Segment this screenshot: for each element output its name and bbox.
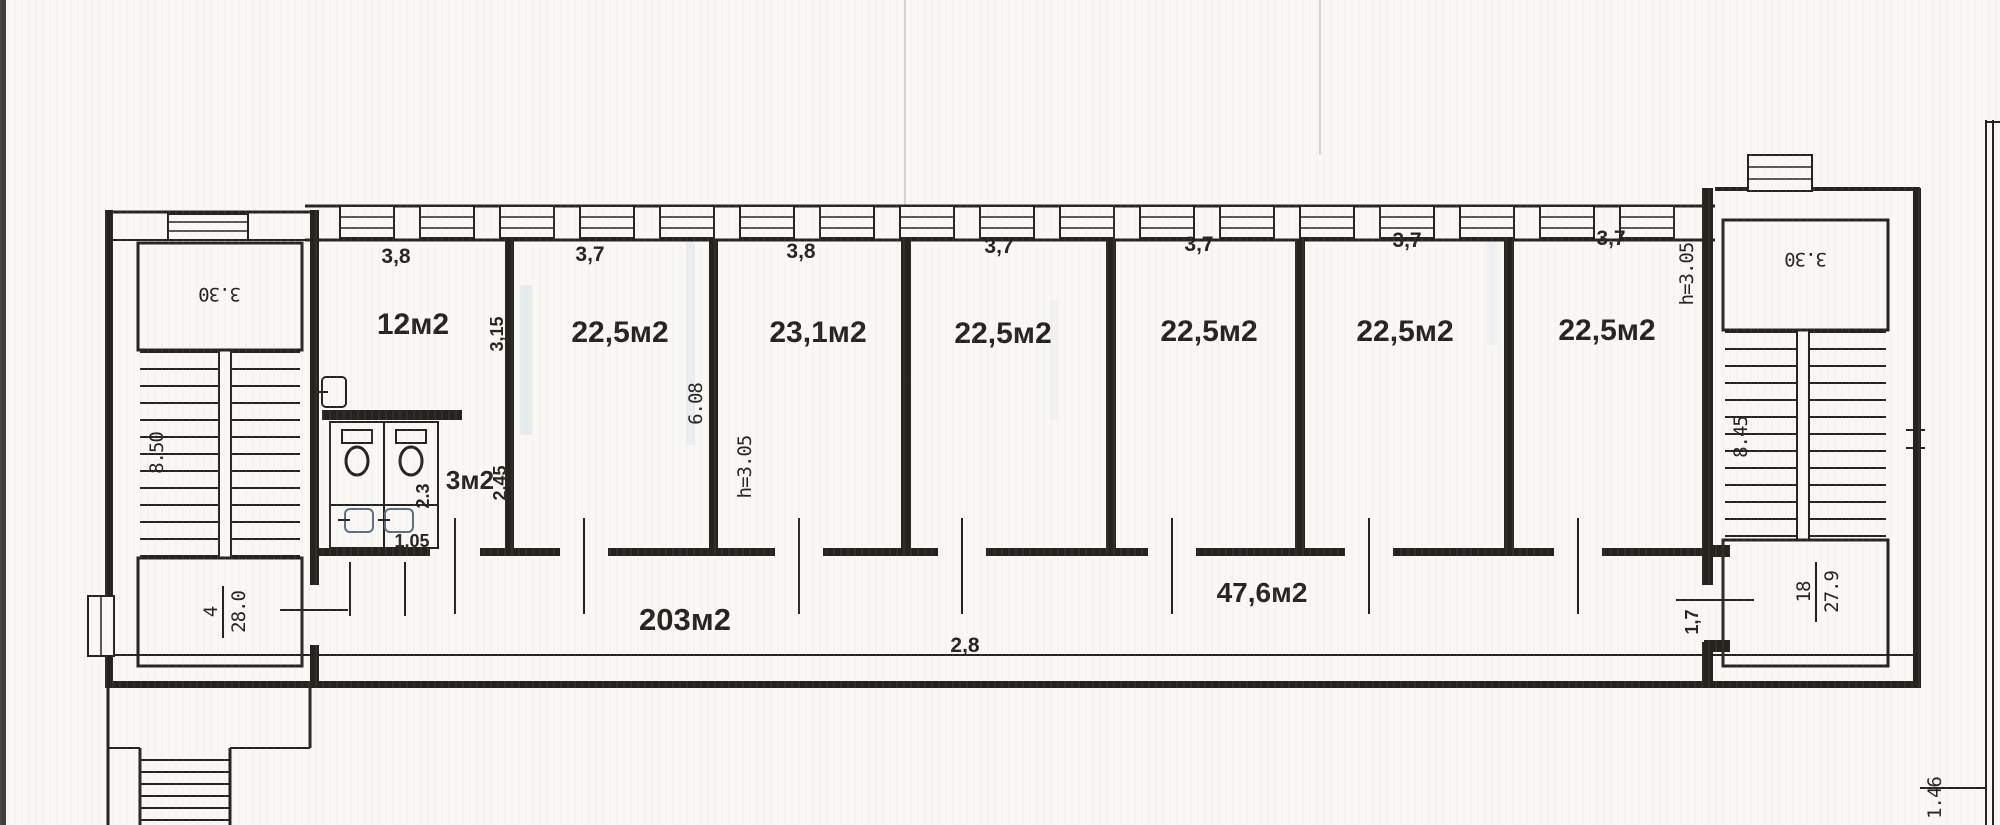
dim-room-width: 3,7 xyxy=(1184,233,1213,256)
toilet-bowl xyxy=(400,447,422,475)
corridor-north-wall xyxy=(823,548,938,556)
partition-wall xyxy=(709,240,718,548)
room-area-label: 23,1м2 xyxy=(769,316,866,349)
plan-labels: 3,8 3,7 3,8 3,7 3,7 3,7 3,7 12м2 22,5м2 … xyxy=(146,227,1946,819)
toilet-bowl xyxy=(346,447,368,475)
window xyxy=(1060,206,1114,238)
partition-wall xyxy=(901,240,911,548)
dim-room-width: 3,8 xyxy=(381,245,411,268)
stair-flight-dim: 8.45 xyxy=(1730,416,1752,458)
corridor-north-wall xyxy=(1393,548,1554,556)
partition-wall xyxy=(1106,240,1116,548)
window xyxy=(420,206,474,238)
dim-room-width: 3,8 xyxy=(786,240,816,263)
door-jamb xyxy=(1704,545,1730,557)
dim-wc-stall-depth: 2.3 xyxy=(413,483,433,508)
stair-count: 4 xyxy=(200,606,222,617)
window xyxy=(740,206,794,238)
stair-count-fraction: 18 27.9 xyxy=(1793,562,1843,622)
corridor-north-wall xyxy=(986,548,1148,556)
window xyxy=(340,206,394,238)
room-area-label: 12м2 xyxy=(377,308,449,341)
stair-length: 28.0 xyxy=(228,591,250,633)
scan-smudge xyxy=(520,285,532,435)
stair-flight-dim: 8.50 xyxy=(146,432,168,474)
partition-wall xyxy=(1504,240,1514,548)
dim-room-width: 3,7 xyxy=(984,235,1013,258)
dim-site-edge: 1.46 xyxy=(1924,777,1946,819)
ceiling-height-note: h=3.05 xyxy=(1676,243,1698,306)
stairwell-east-wall xyxy=(310,645,319,688)
room-area-label: 22,5м2 xyxy=(571,316,668,349)
dim-room-width: 3,7 xyxy=(575,243,604,266)
window xyxy=(500,206,554,238)
scan-edge-strip xyxy=(0,0,6,825)
window xyxy=(1460,206,1514,238)
floor-plan-drawing: 3,8 3,7 3,8 3,7 3,7 3,7 3,7 12м2 22,5м2 … xyxy=(0,0,2000,825)
corridor-north-wall xyxy=(1602,548,1705,556)
walls-and-structure xyxy=(88,120,2000,825)
window xyxy=(820,206,874,238)
room-area-label: 22,5м2 xyxy=(954,317,1051,350)
toilet-tank xyxy=(396,430,426,443)
corridor-total-area-label: 203м2 xyxy=(639,602,731,637)
window xyxy=(1540,206,1594,238)
stair-landing-dim: 3.30 xyxy=(199,283,241,305)
window xyxy=(168,214,248,240)
dim-corridor-width: 2,8 xyxy=(950,634,980,657)
dim-stair-door: 1,7 xyxy=(1682,609,1702,634)
wc-wall xyxy=(322,410,462,420)
stairwell-west-wall xyxy=(1702,188,1713,585)
window xyxy=(1220,206,1274,238)
exterior-wall-bottom xyxy=(105,681,1920,688)
corridor-north-wall xyxy=(608,548,775,556)
room-area-label: 22,5м2 xyxy=(1356,315,1453,348)
scan-smudge xyxy=(1487,225,1497,345)
stair-length: 27.9 xyxy=(1821,571,1843,613)
stairwell-east-wall xyxy=(310,210,319,585)
dim-room-depth: 6.08 xyxy=(685,383,707,425)
window xyxy=(1300,206,1354,238)
window xyxy=(1620,206,1674,238)
wc-area-label: 3м2 xyxy=(446,465,494,495)
window xyxy=(580,206,634,238)
exterior-wall-right xyxy=(1913,188,1921,688)
partition-wall xyxy=(505,240,514,548)
stair-count: 18 xyxy=(1793,581,1815,602)
partition-wall xyxy=(1295,240,1305,548)
window xyxy=(980,206,1034,238)
window xyxy=(660,206,714,238)
room-area-label: 22,5м2 xyxy=(1558,314,1655,347)
scan-artifacts xyxy=(0,0,1497,825)
corridor-right-area-label: 47,6м2 xyxy=(1217,577,1308,608)
dim-wc-stall-width: 1,05 xyxy=(394,531,429,551)
dim-room-width: 3,7 xyxy=(1596,227,1625,250)
window xyxy=(900,206,954,238)
scanned-floor-plan-sheet: 3,8 3,7 3,8 3,7 3,7 3,7 3,7 12м2 22,5м2 … xyxy=(0,0,2000,825)
stair-landing xyxy=(1723,220,1888,330)
corridor-north-wall xyxy=(1196,548,1345,556)
window xyxy=(1748,155,1812,191)
room-area-label: 22,5м2 xyxy=(1160,315,1257,348)
ceiling-height-note: h=3.05 xyxy=(734,436,756,499)
stair-count-fraction: 4 28.0 xyxy=(200,586,250,638)
dim-room12-depth: 3,15 xyxy=(487,316,507,351)
dim-room-width: 3,7 xyxy=(1392,229,1421,252)
stair-landing-dim: 3.30 xyxy=(1785,248,1827,270)
corridor-north-wall xyxy=(480,548,560,556)
door-jamb xyxy=(1704,640,1730,652)
dim-wc-width: 2,45 xyxy=(490,465,510,500)
toilet-tank xyxy=(342,430,372,443)
